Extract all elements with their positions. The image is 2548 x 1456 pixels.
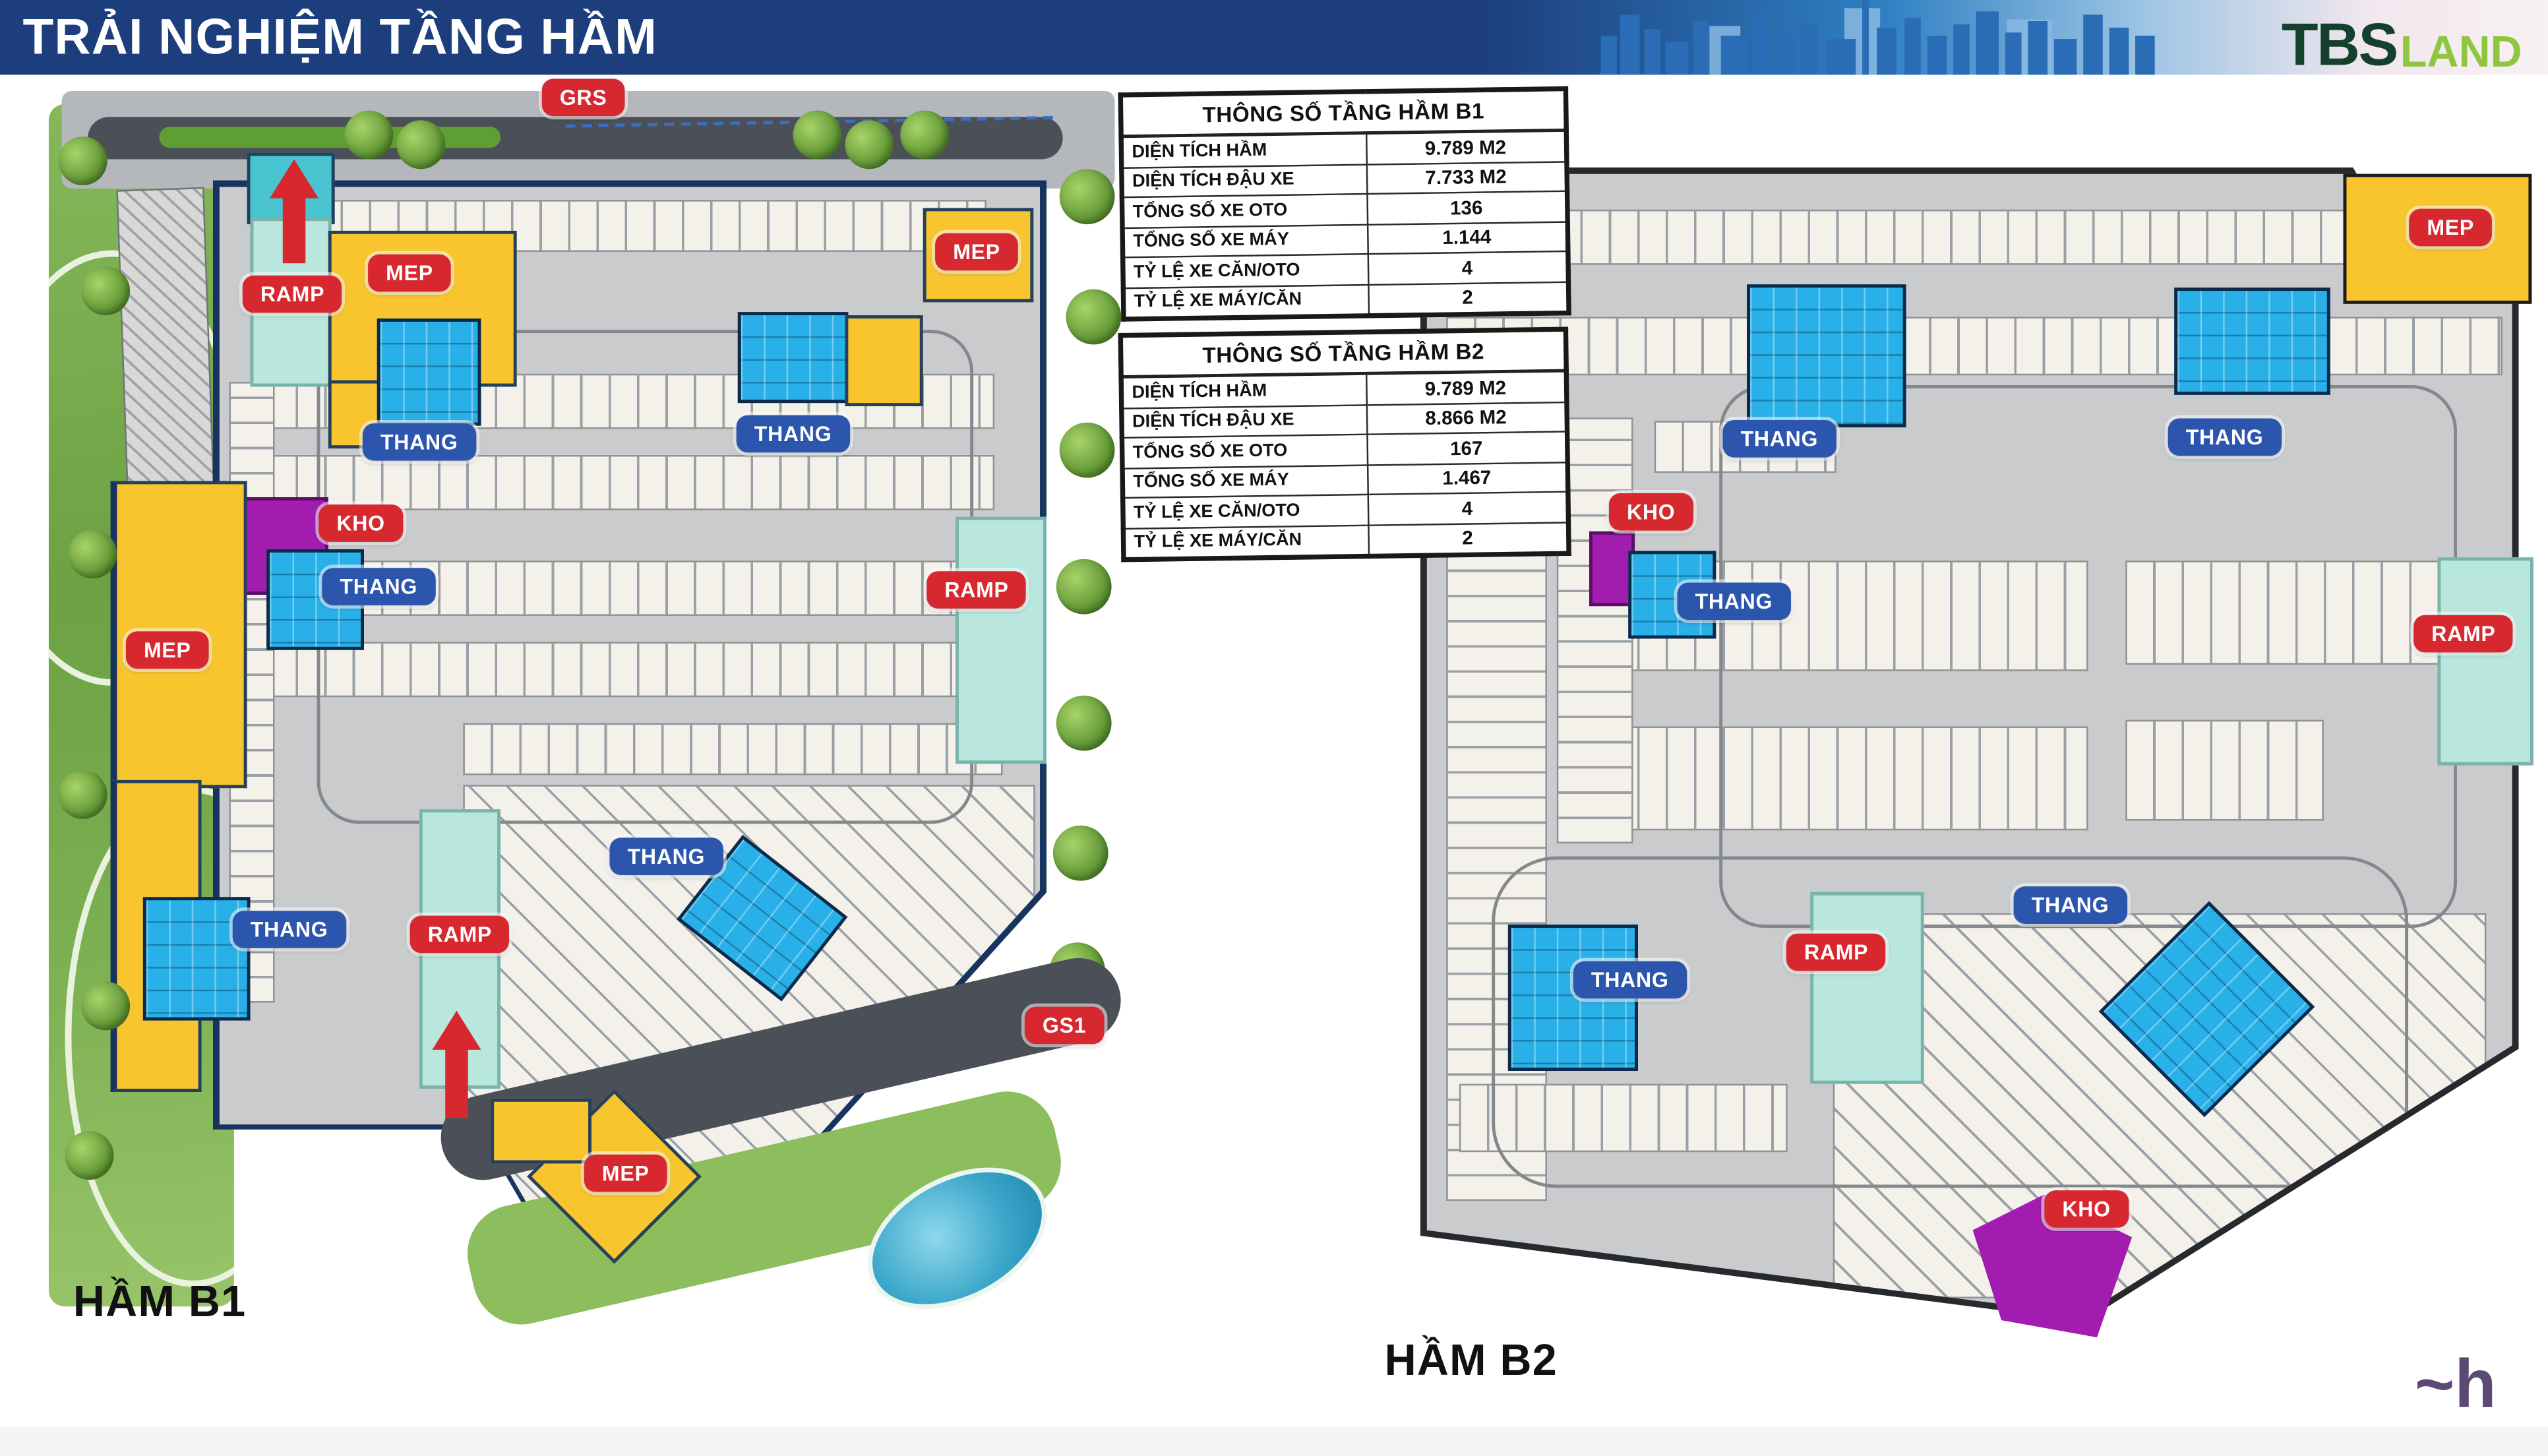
stair-core [1747,284,1906,427]
row-value: 9.789 M2 [1366,130,1567,164]
tree [845,120,894,169]
row-label: DIỆN TÍCH HẦM [1121,133,1366,167]
ramp-lane [956,517,1046,764]
row-value: 136 [1367,191,1567,224]
hatched-area [116,187,215,512]
mep-zone [845,315,923,406]
stair-core [738,312,849,403]
spec-table-b2-title: THÔNG SỐ TẦNG HẦM B2 [1120,329,1566,377]
table-row: TỶ LỆ XE MÁY/CĂN2 [1123,522,1569,559]
row-label: TỔNG SỐ XE OTO [1122,435,1367,468]
ramp-lane [2437,557,2533,765]
stair-core [377,318,481,426]
floorplan-b2 [1414,154,2543,1341]
row-value: 4 [1368,492,1568,525]
tree [65,1131,114,1180]
spec-table-b1-body: DIỆN TÍCH HẦM9.789 M2DIỆN TÍCH ĐẬU XE7.7… [1121,130,1569,319]
tree [900,111,949,160]
row-label: TỶ LỆ XE MÁY/CĂN [1123,524,1368,559]
spec-table-b2-body: DIỆN TÍCH HẦM9.789 M2DIỆN TÍCH ĐẬU XE8.8… [1121,371,1569,560]
ramp-lane [1810,892,1924,1084]
row-value: 9.789 M2 [1366,371,1567,404]
row-label: TỔNG SỐ XE OTO [1122,194,1367,228]
row-value: 8.866 M2 [1366,402,1567,435]
tree [59,136,107,185]
parking-stalls-band [1467,210,2405,265]
header-bar: TRẢI NGHIỆM TẦNG HẦM TBSLAND [0,0,2548,75]
tree [1056,696,1112,751]
row-value: 1.467 [1367,462,1567,495]
tree [68,530,117,578]
row-label: TỶ LỆ XE CĂN/OTO [1123,495,1368,528]
stair-core [1628,551,1716,638]
tree [396,120,445,169]
tree [1066,289,1122,345]
caption-b1: HẦM B1 [73,1277,246,1327]
row-value: 4 [1368,251,1568,284]
row-label: DIỆN TÍCH HẦM [1121,373,1366,408]
bottom-strip [0,1427,2548,1456]
mep-zone [923,208,1034,302]
slide: TRẢI NGHIỆM TẦNG HẦM TBSLAND [0,0,2548,1456]
b2-parking-area [1427,174,2512,1315]
row-label: TỔNG SỐ XE MÁY [1122,464,1368,498]
tree [81,266,130,315]
spec-table-b1-title: THÔNG SỐ TẦNG HẦM B1 [1120,89,1566,136]
mep-zone [2343,174,2532,304]
top-road [62,91,1115,189]
tbs-land-logo: TBSLAND [2282,0,2522,80]
row-label: TỶ LỆ XE MÁY/CĂN [1123,284,1368,319]
stair-core [143,897,251,1020]
drive-aisle [1719,385,2457,928]
row-value: 1.144 [1367,221,1567,254]
caption-b2: HẦM B2 [1385,1336,1558,1386]
stair-core [1508,925,1638,1071]
tree [1060,169,1115,224]
watermark-logo: ~h [2415,1345,2497,1423]
spec-table-b2: THÔNG SỐ TẦNG HẦM B2 DIỆN TÍCH HẦM9.789 … [1118,327,1571,562]
row-label: TỔNG SỐ XE MÁY [1122,224,1368,258]
logo-secondary-text: LAND [2400,29,2522,75]
row-value: 167 [1367,431,1567,464]
ramp-direction-arrow-icon [270,159,318,263]
stair-core [266,549,364,650]
city-skyline-icon [1600,0,2161,75]
tree [793,111,842,160]
row-label: DIỆN TÍCH ĐẬU XE [1122,404,1367,438]
spec-table-b1: THÔNG SỐ TẦNG HẦM B1 DIỆN TÍCH HẦM9.789 … [1118,86,1571,322]
floorplan-b1 [49,91,1113,1336]
row-value: 2 [1368,282,1569,316]
tree [1053,826,1108,881]
row-value: 7.733 M2 [1366,161,1567,194]
logo-primary-text: TBS [2282,15,2397,75]
row-value: 2 [1368,522,1569,556]
mep-zone-left [111,481,247,788]
road-median-green [159,127,500,148]
ramp-direction-arrow-icon [435,1011,477,1118]
row-label: DIỆN TÍCH ĐẬU XE [1122,164,1367,197]
row-label: TỶ LỆ XE CĂN/OTO [1123,254,1368,288]
page-title: TRẢI NGHIỆM TẦNG HẦM [23,0,658,75]
stair-core [2174,288,2330,395]
tree [344,111,393,160]
tree [81,981,130,1030]
table-row: TỶ LỆ XE MÁY/CĂN2 [1123,282,1569,319]
mep-zone-bottom [491,1099,591,1164]
parking-stalls-band [1446,317,2502,376]
tree [1056,559,1112,615]
tree [59,770,107,819]
tree [1060,423,1115,478]
